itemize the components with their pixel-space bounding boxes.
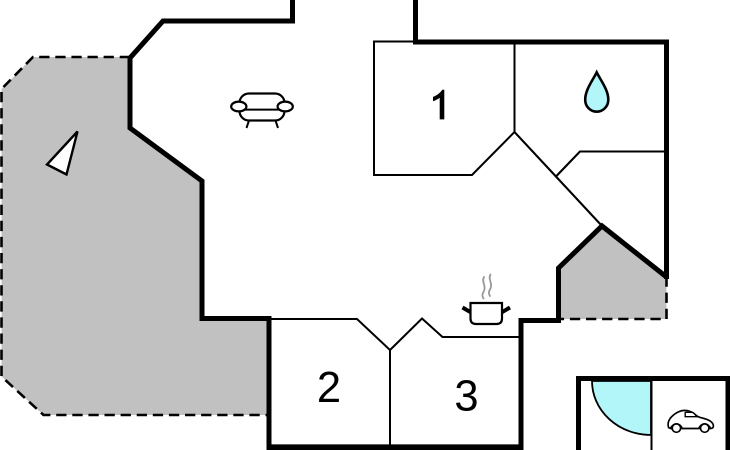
svg-text:2: 2 (317, 364, 341, 412)
svg-text:3: 3 (454, 373, 478, 421)
